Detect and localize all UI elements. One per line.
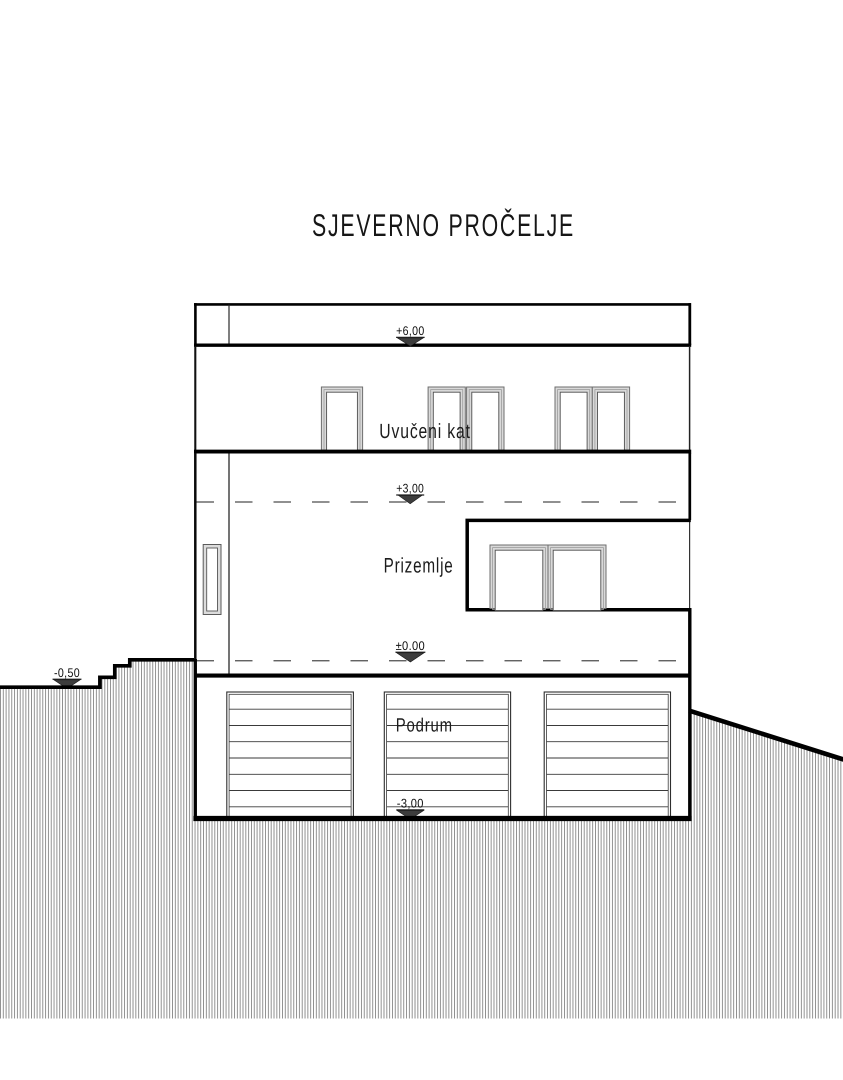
svg-text:-3,00: -3,00 bbox=[397, 797, 424, 811]
svg-text:±0.00: ±0.00 bbox=[396, 639, 426, 653]
svg-text:SJEVERNO PROČELJE: SJEVERNO PROČELJE bbox=[312, 207, 575, 243]
svg-text:Prizemlje: Prizemlje bbox=[384, 555, 454, 578]
svg-text:Uvučeni kat: Uvučeni kat bbox=[379, 420, 471, 443]
svg-text:+3,00: +3,00 bbox=[396, 482, 424, 496]
svg-text:Podrum: Podrum bbox=[396, 716, 453, 737]
svg-text:+6,00: +6,00 bbox=[396, 324, 425, 338]
svg-text:-0,50: -0,50 bbox=[54, 666, 80, 680]
